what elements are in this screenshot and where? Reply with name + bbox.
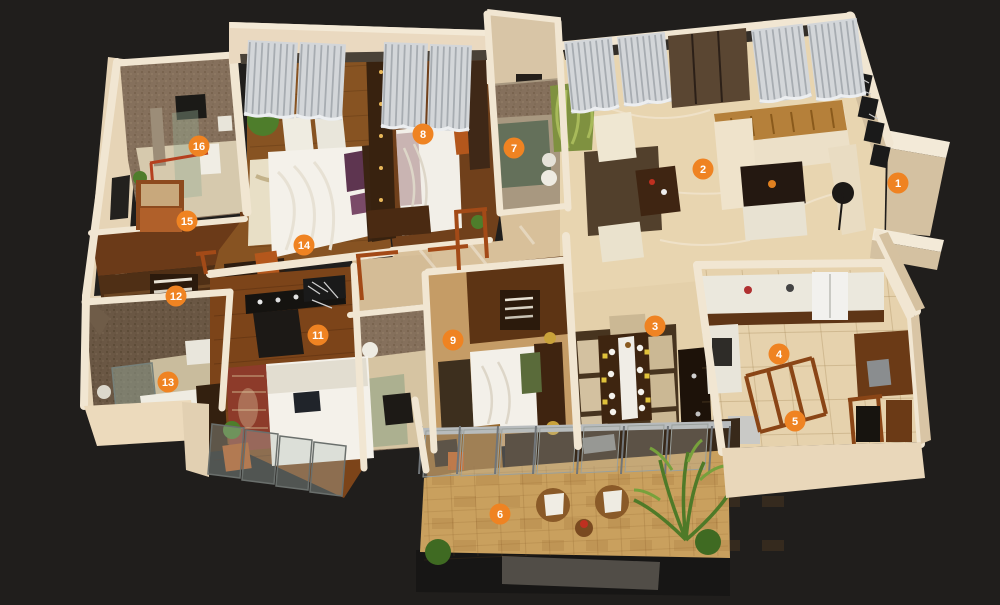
svg-text:1: 1 — [895, 178, 901, 190]
svg-text:7: 7 — [511, 143, 517, 155]
svg-text:8: 8 — [420, 129, 426, 141]
svg-text:9: 9 — [450, 335, 456, 347]
svg-text:3: 3 — [652, 321, 658, 333]
svg-text:6: 6 — [497, 509, 503, 521]
svg-text:5: 5 — [792, 416, 798, 428]
svg-text:2: 2 — [700, 164, 706, 176]
svg-text:11: 11 — [312, 330, 324, 342]
svg-text:13: 13 — [162, 377, 174, 389]
svg-text:4: 4 — [776, 349, 783, 361]
svg-text:12: 12 — [170, 291, 182, 303]
svg-text:14: 14 — [298, 240, 311, 252]
svg-text:16: 16 — [193, 141, 205, 153]
svg-text:15: 15 — [181, 216, 193, 228]
